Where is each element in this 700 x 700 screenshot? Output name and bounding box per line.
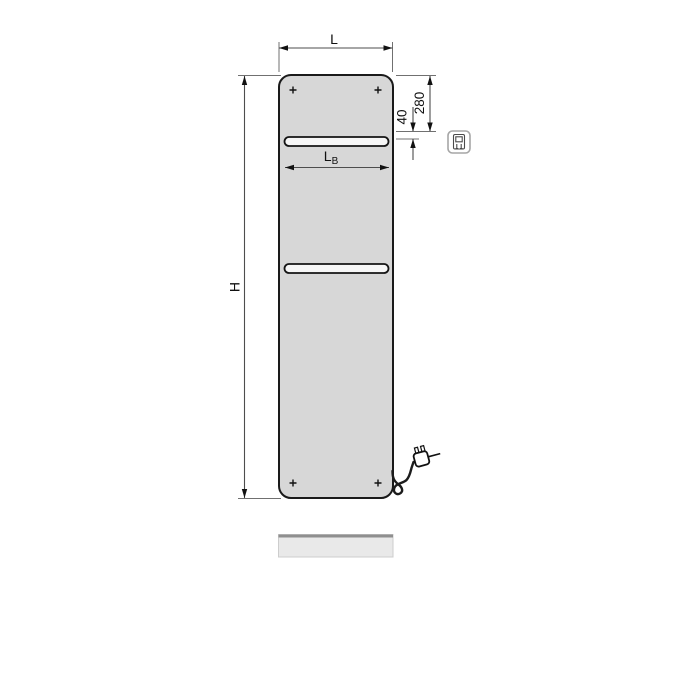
technical-drawing-canvas: L H 280 40 [0,0,700,700]
arrowhead [242,489,247,498]
dim-label-height: H [227,282,243,292]
arrowhead [410,123,415,132]
arrowhead [410,139,415,148]
arrowhead [242,76,247,85]
power-cable [393,462,414,494]
arrowhead [384,45,393,50]
panel-top-view [279,535,394,558]
dimension-height: H [227,76,281,499]
dim-label-bar-width-sub: B [332,156,339,167]
arrowhead [427,76,432,85]
dim-label-width: L [330,31,338,47]
power-cord [393,442,443,494]
dim-label-top-offset: 280 [412,92,427,115]
towel-rail-middle [285,264,389,273]
towel-rail-top [285,137,389,146]
dim-label-bar-offset: 40 [395,109,410,124]
plug-pin [428,454,440,457]
plug-body [413,451,430,468]
panel-top-view-body [279,535,394,558]
dim-label-bar-width-main: L [324,148,332,164]
dimension-width: L [279,31,393,72]
power-plug-icon [412,442,443,467]
electric-control-unit-icon [448,131,470,153]
arrowhead [279,45,288,50]
arrowhead [427,123,432,132]
radiator-diagram: L H 280 40 [0,0,700,700]
